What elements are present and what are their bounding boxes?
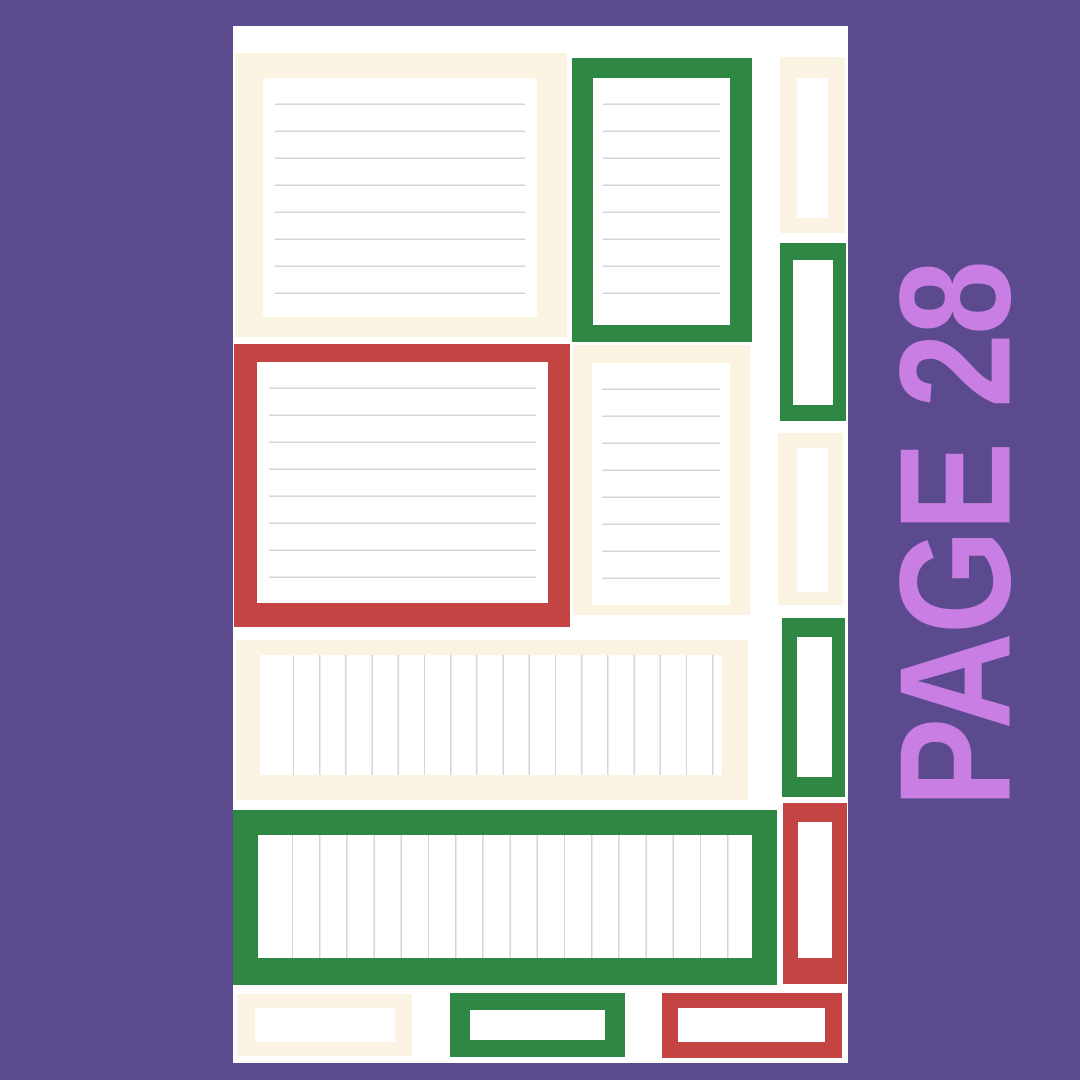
sticker-inner [260,655,722,775]
ruled-lines [602,363,720,593]
sticker-inner [263,78,537,317]
red-label-small [662,993,842,1058]
green-checklist-strip [233,810,777,985]
sticker-inner [793,260,833,405]
checklist-columns [268,655,714,775]
purple-background: PAGE 28 [0,0,1080,1080]
ruled-lines [275,78,525,303]
sticker-inner [797,448,828,592]
green-lined-note [572,58,752,342]
sticker-inner [255,1008,395,1042]
checklist-columns [266,835,744,958]
cream-side-tab-top [780,57,845,233]
cream-lined-note-small [573,345,750,615]
sticker-inner [258,835,752,958]
cream-checklist-strip [236,640,748,800]
sticker-inner [798,822,832,958]
red-lined-note-large [234,344,570,627]
page-number-label: PAGE 28 [897,250,1014,820]
green-side-tab-lower [782,618,845,797]
sticker-inner [470,1010,605,1040]
cream-lined-note-large [235,53,567,337]
red-side-tab-bottom [783,803,847,984]
green-label-small [450,993,625,1057]
page-number-text: PAGE 28 [876,262,1034,807]
cream-side-tab-middle [778,433,843,605]
sticker-inner [678,1008,825,1042]
cream-label-small [237,994,412,1056]
sticker-inner [592,363,730,605]
sticker-inner [797,637,832,777]
ruled-lines [269,362,536,591]
sticker-inner [257,362,548,603]
sticker-sheet [233,26,848,1063]
ruled-lines [603,78,720,309]
sticker-inner [797,78,828,218]
sticker-inner [593,78,730,325]
green-side-tab-top [780,243,846,421]
